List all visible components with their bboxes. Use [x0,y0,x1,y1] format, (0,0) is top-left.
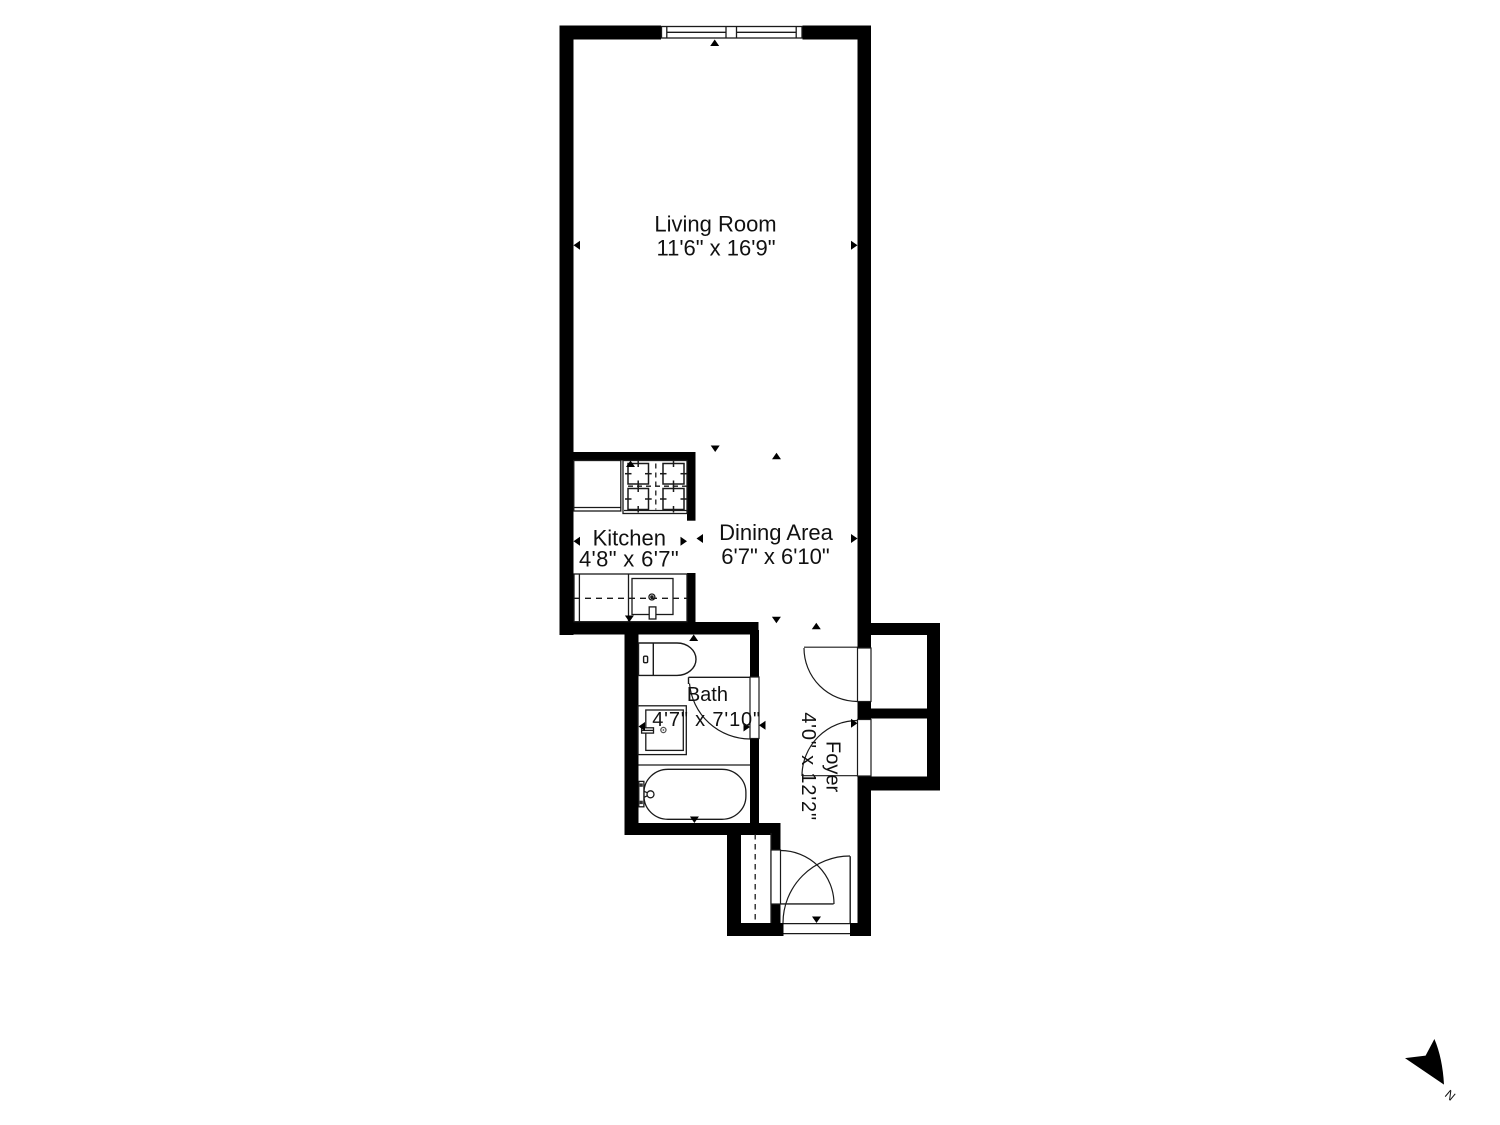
svg-text:6'7" x 6'10": 6'7" x 6'10" [721,544,829,569]
svg-text:Foyer: Foyer [822,741,844,792]
svg-text:Bath: Bath [687,684,728,706]
svg-text:Living Room: Living Room [654,212,776,237]
svg-text:4'8" x 6'7": 4'8" x 6'7" [579,547,679,572]
svg-text:4'0" x 12'2": 4'0" x 12'2" [797,712,819,821]
svg-text:Dining Area: Dining Area [719,520,834,545]
svg-text:11'6" x 16'9": 11'6" x 16'9" [656,236,775,261]
svg-text:4'7" x 7'10": 4'7" x 7'10" [652,709,761,731]
